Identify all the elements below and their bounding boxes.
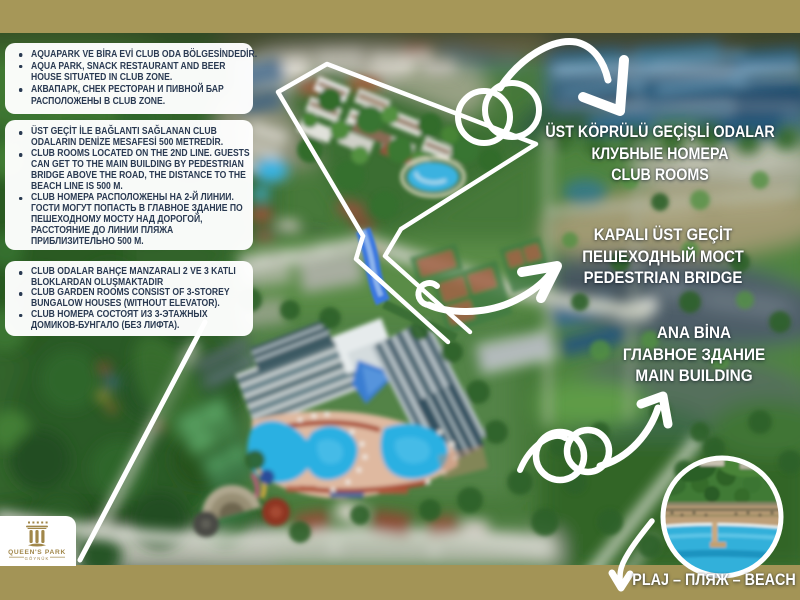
svg-text:QUEEN'S PARK: QUEEN'S PARK (8, 549, 66, 556)
svg-text:GÖYNÜK: GÖYNÜK (25, 556, 50, 561)
